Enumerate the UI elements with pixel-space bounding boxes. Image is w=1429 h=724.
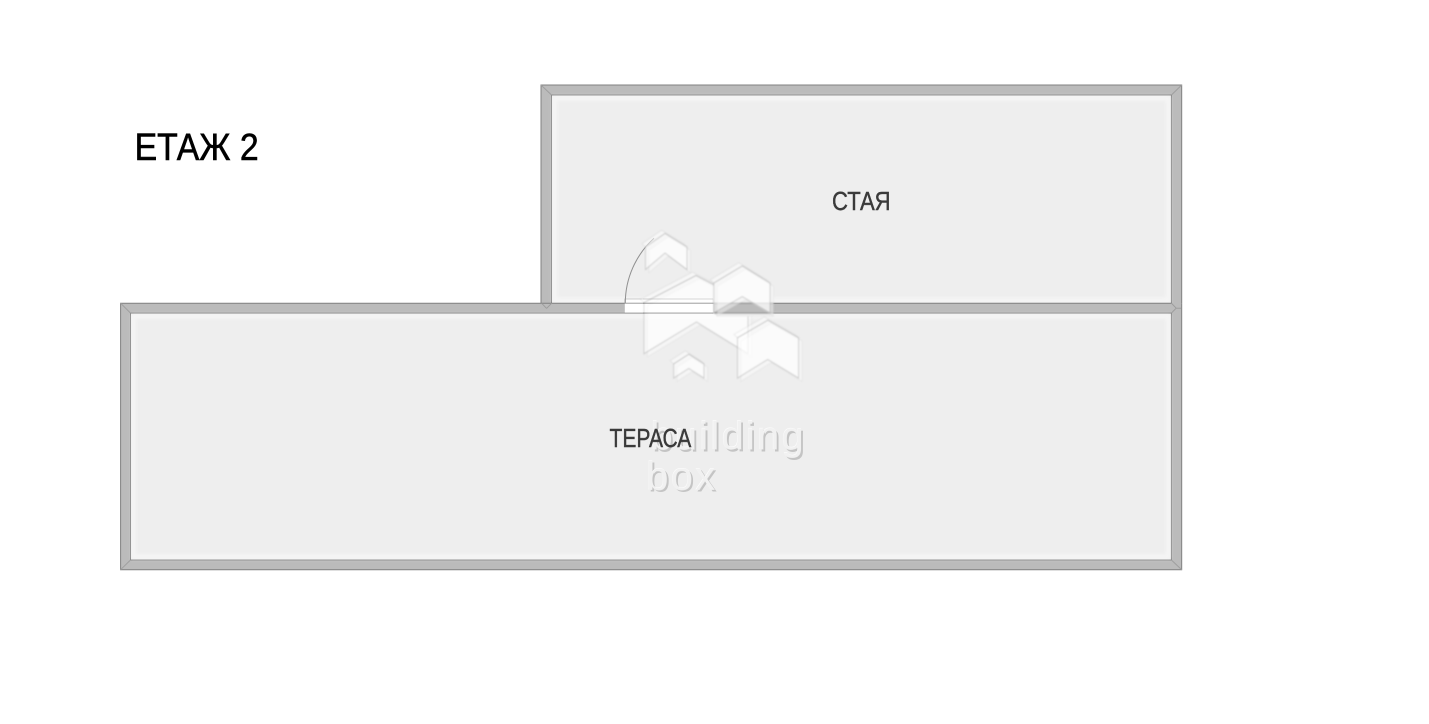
- svg-text:СТАЯ: СТАЯ: [832, 187, 891, 216]
- svg-text:box: box: [646, 455, 717, 499]
- svg-text:ТЕРАСА: ТЕРАСА: [609, 425, 691, 454]
- svg-text:ЕТАЖ 2: ЕТАЖ 2: [135, 125, 259, 168]
